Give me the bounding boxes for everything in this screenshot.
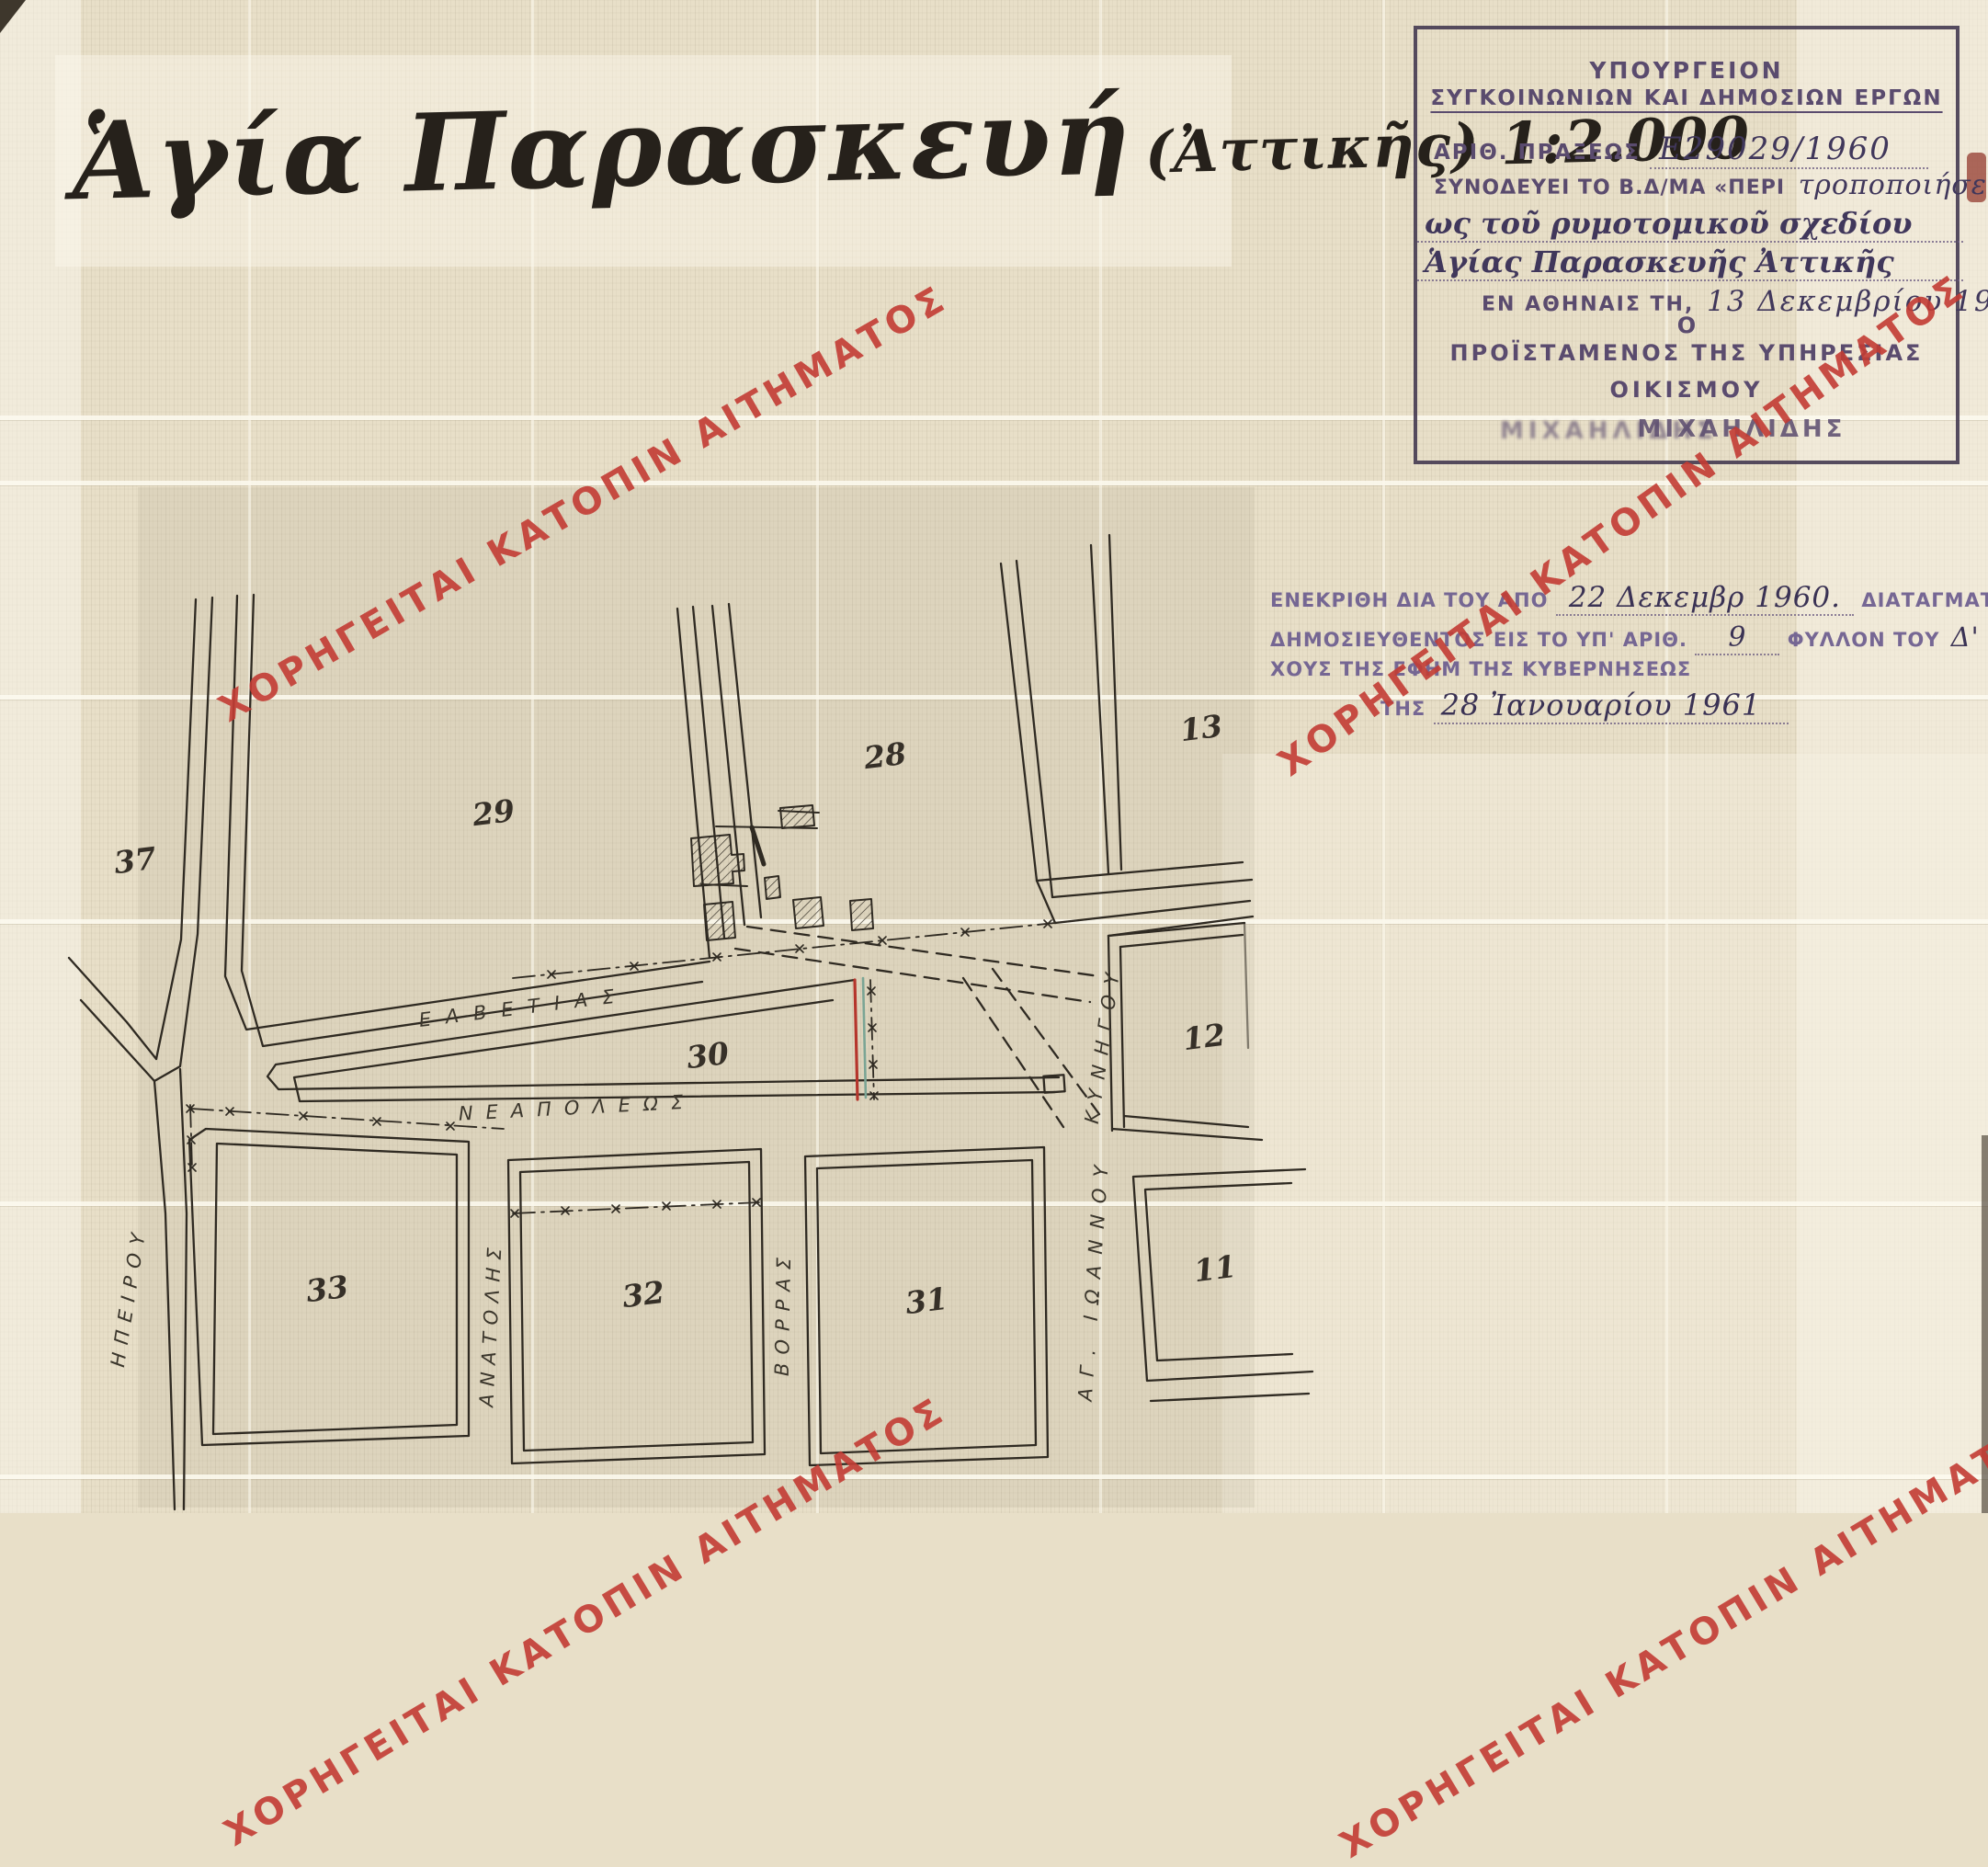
- dashed-alignment-lines: [735, 927, 1099, 1127]
- approval-line2-typed: ΔΗΜΟΣΙΕΥΘΕΝΤΟΣ ΕΙΣ ΤΟ ΥΠ' ΑΡΙΘ.: [1270, 629, 1687, 651]
- block-number-13: 13: [1178, 708, 1224, 748]
- stamp-act-number: Ε29029/1960: [1650, 131, 1928, 169]
- street-elvetias-north-boundary: [225, 595, 710, 1046]
- block-number-12: 12: [1181, 1017, 1227, 1057]
- ministry-stamp-box: ΥΠΟΥΡΓΕΙΟΝ ΣΥΓΚΟΙΝΩΝΙΩΝ ΚΑΙ ΔΗΜΟΣΙΩΝ ΕΡΓ…: [1414, 26, 1960, 464]
- block-number-37: 37: [112, 840, 158, 881]
- stamp-ministry-line1: ΥΠΟΥΡΓΕΙΟΝ: [1417, 57, 1956, 84]
- approval-line4-typed: ΤΗΣ: [1380, 698, 1426, 720]
- block-number-28: 28: [862, 735, 908, 776]
- approval-line2-handwritten-number: 9: [1695, 621, 1779, 655]
- survey-dash-dot-lines: [190, 923, 1055, 1213]
- stamp-head-title-line1: ΠΡΟΪΣΤΑΜΕΝΟΣ ΤΗΣ ΥΠΗΡΕΣΙΑΣ: [1417, 340, 1956, 366]
- approval-line1-typed: ΕΝΕΚΡΙΘΗ ΔΙΑ ΤΟΥ ΑΠΟ: [1270, 589, 1549, 611]
- approval-line4: ΤΗΣ 28 Ἰανουαρίου 1961: [1380, 688, 1789, 723]
- approval-line3: ΧΟΥΣ ΤΗΣ ΕΦΗΜ ΤΗΣ ΚΥΒΕΡΝΗΣΕΩΣ: [1270, 658, 1691, 680]
- approval-line2: ΔΗΜΟΣΙΕΥΘΕΝΤΟΣ ΕΙΣ ΤΟ ΥΠ' ΑΡΙΘ. 9 ΦΥΛΛΟΝ…: [1270, 621, 1988, 654]
- block-number-29: 29: [471, 792, 517, 833]
- block-number-31: 31: [903, 1281, 949, 1321]
- block-30-wedge-outline: [267, 980, 1059, 1101]
- block-number-11: 11: [1192, 1248, 1238, 1289]
- stamp-accompanies-handwriting-1: τροποποιήσε: [1793, 169, 1987, 201]
- approval-line1-typed-2: ΔΙΑΤΑΓΜΑΤΟΣ: [1861, 589, 1988, 611]
- stamp-article-o: Ο: [1417, 313, 1956, 338]
- stamp-signature: ΜΙΧΑΗΛΙΔΗΣ: [1638, 416, 1846, 443]
- stamp-act-row: ΑΡΙΘ. ΠΡΑΞΕΩΣ Ε29029/1960: [1417, 131, 1972, 167]
- block-number-33: 33: [304, 1269, 350, 1309]
- stamp-accompanies-handwriting-3: Ἁγίας Παρασκευῆς Ἀττικῆς: [1417, 245, 1963, 281]
- street-top-left-linework: [69, 598, 212, 1509]
- block-number-30: 30: [685, 1035, 731, 1076]
- map-title-main: Ἁγία Παρασκευή: [71, 74, 1133, 224]
- approval-line2-handwritten-issue: Δ': [1948, 621, 1983, 653]
- approval-line1-handwritten-date: 22 Δεκεμβρ 1960.: [1556, 581, 1854, 616]
- approval-line1: ΕΝΕΚΡΙΘΗ ΔΙΑ ΤΟΥ ΑΠΟ 22 Δεκεμβρ 1960. ΔΙ…: [1270, 581, 1988, 614]
- stamp-accompanies-handwriting-2: ως τοῦ ρυμοτομικοῦ σχεδίου: [1417, 206, 1963, 243]
- stamp-act-label: ΑΡΙΘ. ΠΡΑΞΕΩΣ: [1434, 141, 1641, 165]
- approval-line4-handwritten-date: 28 Ἰανουαρίου 1961: [1434, 688, 1789, 724]
- survey-cross-marks: [187, 920, 1051, 1217]
- approval-line2-typed-2: ΦΥΛΛΟΝ ΤΟΥ: [1788, 629, 1940, 651]
- stamp-head-title-line2: ΟΙΚΙΣΜΟΥ: [1417, 377, 1956, 403]
- street-label-vorras: ΒΟΡΡΑΣ: [771, 1249, 795, 1376]
- stamp-signature-row: ΜΙΧΑΗΛΙΔΗΣ ΜΙΧΑΗΛΙΔΗΣ: [1417, 416, 1956, 452]
- block-number-32: 32: [620, 1274, 666, 1315]
- stamp-accompanies-row: ΣΥΝΟΔΕΥΕΙ ΤΟ Β.Δ/ΜΑ «ΠΕΡΙ τροποποιήσε: [1417, 169, 1972, 201]
- stamp-accompanies-label: ΣΥΝΟΔΕΥΕΙ ΤΟ Β.Δ/ΜΑ «ΠΕΡΙ: [1434, 176, 1785, 199]
- scanned-town-plan-page: { "title": { "main": "Ἁγία Παρασκευή", "…: [0, 0, 1988, 1513]
- stamp-ministry-line2: ΣΥΓΚΟΙΝΩΝΙΩΝ ΚΑΙ ΔΗΜΟΣΙΩΝ ΕΡΓΩΝ: [1417, 86, 1956, 110]
